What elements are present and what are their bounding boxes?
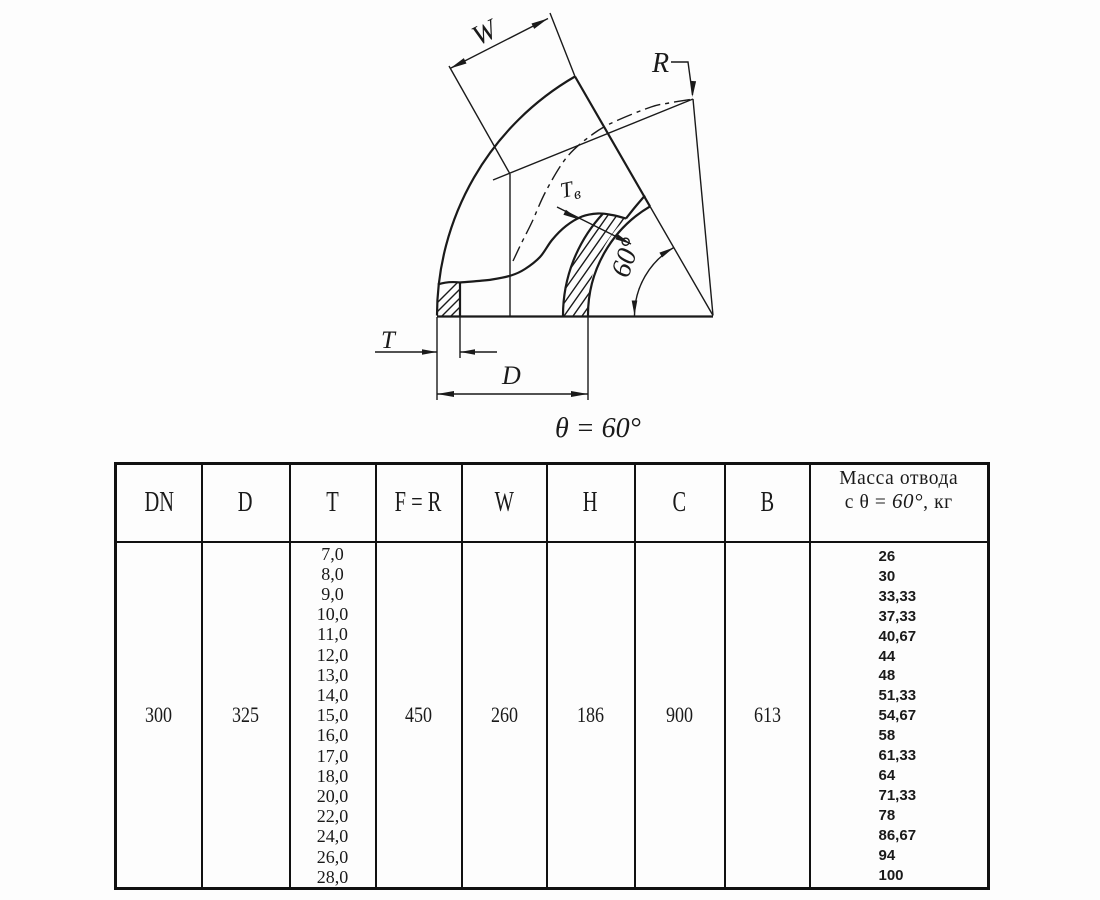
svg-text:T: T bbox=[381, 327, 397, 354]
svg-text:Tв: Tв bbox=[558, 174, 583, 205]
svg-text:D: D bbox=[501, 361, 521, 390]
svg-text:W: W bbox=[467, 13, 504, 52]
svg-text:θ = 60°: θ = 60° bbox=[555, 413, 641, 444]
svg-text:R: R bbox=[651, 48, 669, 79]
